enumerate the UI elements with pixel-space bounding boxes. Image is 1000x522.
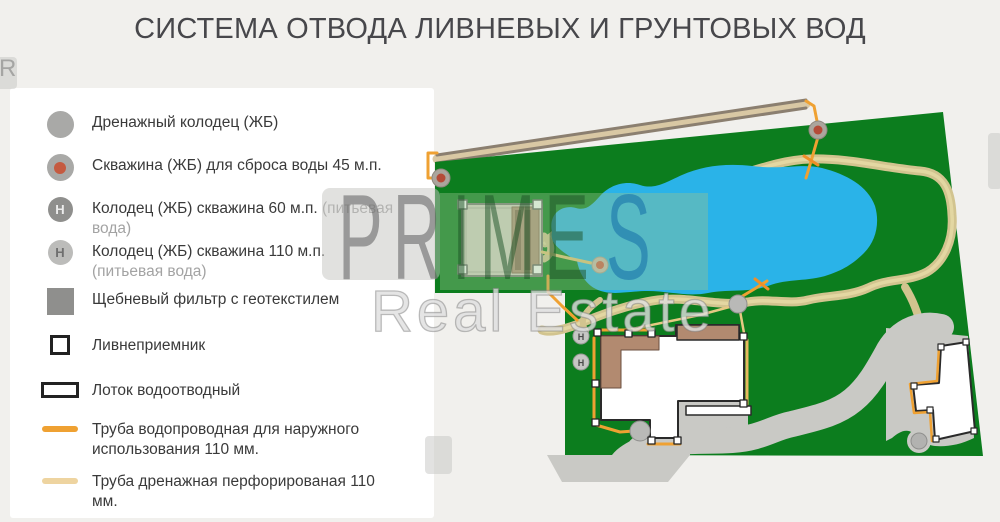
house-corner-inlet [740,400,747,407]
legend-label: Труба дренажная перфорированая 110 мм. [92,472,397,513]
garage-corner-inlet [458,265,467,274]
legend-item-well-60: НКолодец (ЖБ) скважина 60 м.п. (питьевая… [28,199,414,240]
house-corner-inlet [592,419,599,426]
legend-label: Колодец (ЖБ) скважина 60 м.п. (питьевая … [92,199,397,240]
guest-corner-inlet [971,428,977,434]
house-corner-inlet [594,329,601,336]
guest-corner-inlet [933,436,939,442]
well-60-icon: Н [28,197,92,222]
gravel-filter-icon [28,288,92,315]
drinking-well-110-label: Н [578,358,585,368]
garage-deck-stripe [525,210,531,270]
borehole-well-pond-center [596,261,604,269]
house-corner-inlet [625,330,632,337]
house-corner-inlet [648,330,655,337]
legend-item-water-pipe: Труба водопроводная для наружного исполь… [28,420,414,461]
legend-label: Щебневый фильтр с геотекстилем [92,290,339,310]
guest-corner-inlet [911,383,917,389]
guest-corner-inlet [938,344,944,350]
main-house-roof-top [677,325,739,340]
legend-label: Дренажный колодец (ЖБ) [92,113,278,133]
house-corner-inlet [592,380,599,387]
garage-corner-inlet [533,265,542,274]
borehole-well-top-center [814,126,823,135]
storm-inlet-icon [28,334,92,355]
legend-label: Труба водопроводная для наружного исполь… [92,420,397,461]
guest-corner-inlet [927,407,933,413]
drinking-well-60-label: Н [578,332,585,342]
garage-corner-inlet [458,200,467,209]
drain-well-icon [28,111,92,138]
legend-label: Скважина (ЖБ) для сброса воды 45 м.п. [92,156,382,176]
legend-label: Колодец (ЖБ) скважина 110 м.п. (питьевая… [92,242,397,283]
legend-item-well-110: НКолодец (ЖБ) скважина 110 м.п. (питьева… [28,242,414,283]
legend-item-gravel-filter: Щебневый фильтр с геотекстилем [28,290,414,315]
garage-deck-stripe [515,210,521,270]
water-pipe-icon [28,418,92,439]
house-corner-inlet [740,333,747,340]
house-corner-inlet [674,437,681,444]
drainage-well-junction [729,295,747,313]
legend-item-drain-tray: Лоток водоотводный [28,381,414,401]
legend-items: Дренажный колодец (ЖБ)Скважина (ЖБ) для … [0,0,434,522]
garage-corner-inlet [533,200,542,209]
legend-label: Лоток водоотводный [92,381,240,401]
drainage-well-house [630,421,650,441]
drainage-well-right [911,433,927,449]
legend-item-drain-well: Дренажный колодец (ЖБ) [28,113,414,138]
drain-pipe-icon [28,470,92,491]
house-corner-inlet [648,437,655,444]
drain-tray-icon [28,379,92,400]
legend-item-drain-pipe: Труба дренажная перфорированая 110 мм. [28,472,414,513]
well-110-icon: Н [28,240,92,265]
page-title: СИСТЕМА ОТВОДА ЛИВНЕВЫХ И ГРУНТОВЫХ ВОД [0,13,1000,46]
guest-corner-inlet [963,339,969,345]
legend-label: Ливнеприемник [92,336,205,356]
legend-item-discharge-well: Скважина (ЖБ) для сброса воды 45 м.п. [28,156,414,181]
legend-item-storm-inlet: Ливнеприемник [28,336,414,356]
discharge-well-icon [28,154,92,181]
borehole-well-left-center [437,174,446,183]
